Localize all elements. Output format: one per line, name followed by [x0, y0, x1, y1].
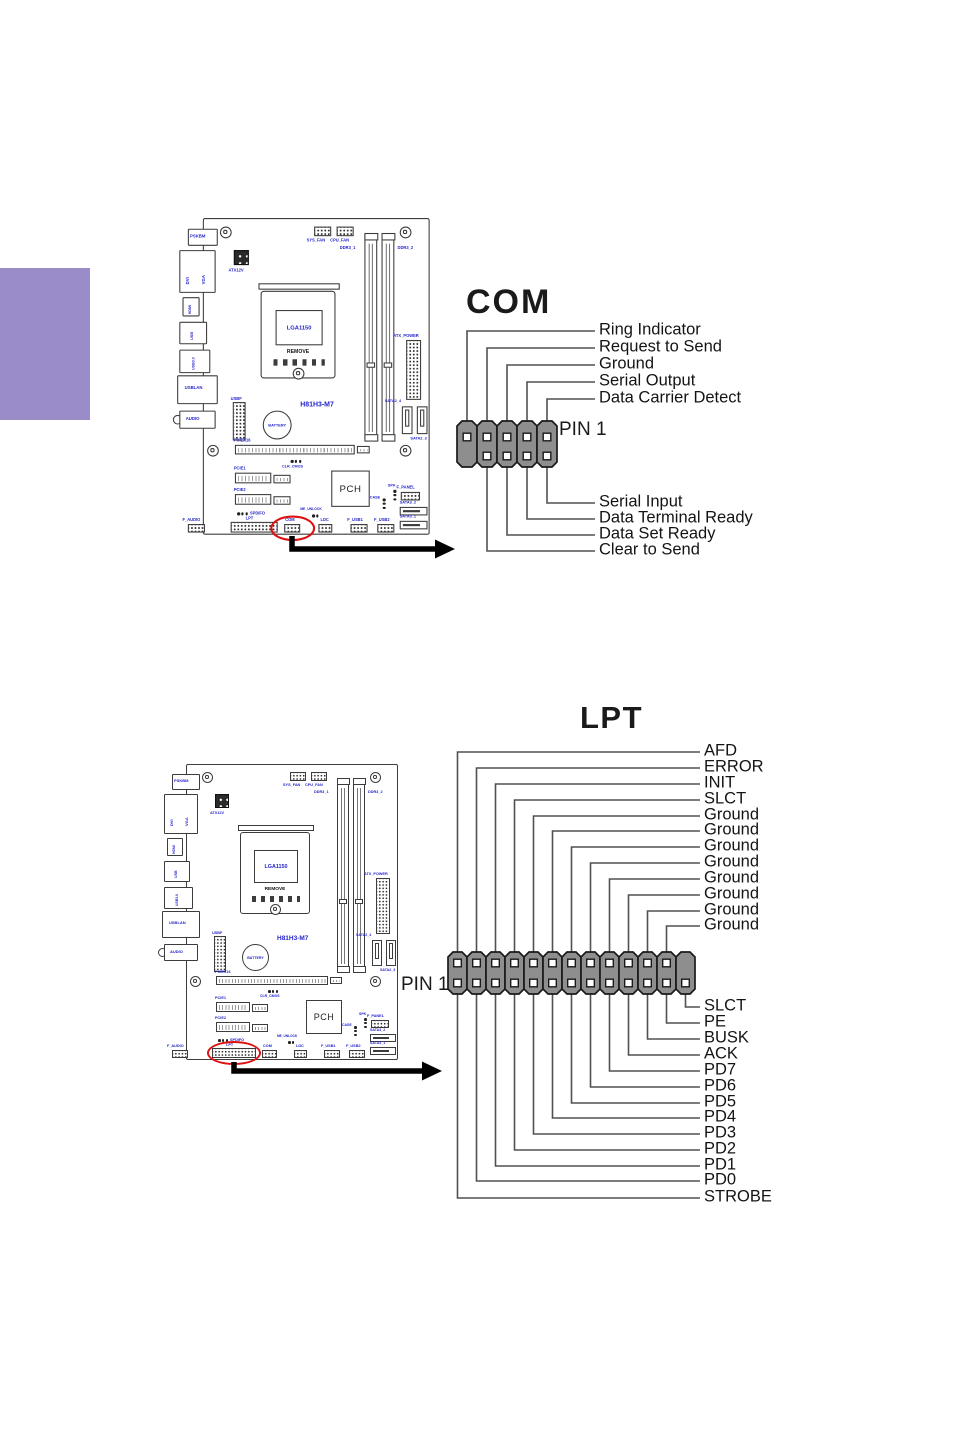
lga-label: LGA1150	[287, 324, 312, 330]
sata-port	[386, 940, 396, 966]
slot-contacts	[333, 980, 340, 982]
lpt-header-column	[543, 952, 562, 994]
pcie2-slot	[216, 1022, 250, 1032]
usbf-header-label: USBF	[231, 397, 242, 401]
f-panel-header	[371, 1020, 389, 1028]
screw-inner	[373, 979, 376, 982]
battery: BATTERY	[242, 944, 269, 971]
sata-port	[372, 940, 382, 966]
com-signal-label: Clear to Send	[599, 541, 700, 560]
lpt-pin	[530, 979, 538, 987]
pciex16-slot-label: PCIEX16	[234, 438, 251, 442]
sata-port	[400, 521, 428, 530]
pciex16-slot	[235, 445, 355, 455]
pciex16-slot	[216, 976, 328, 985]
case-jumper-pin	[383, 498, 386, 501]
lpt-header-column	[524, 952, 543, 994]
clr-cmos-jumper-pin	[276, 990, 279, 993]
spdifo-header-pin	[237, 512, 240, 515]
lpt-pin	[473, 979, 481, 987]
screw-inner	[296, 371, 300, 375]
slot-contacts	[276, 499, 288, 502]
com-pin	[503, 452, 511, 460]
pcie2-slot-label: PCIE2	[234, 488, 246, 492]
spdifo-header-pin	[245, 512, 248, 515]
dimm-slot	[337, 779, 349, 971]
screw-hole	[220, 227, 232, 239]
com-pin	[543, 452, 551, 460]
dimm-key	[339, 899, 347, 904]
lpt-pin	[606, 979, 614, 987]
clr-cmos-jumper-pin	[268, 990, 271, 993]
ps2-keyboard-mouse-port-label: PSKBM	[174, 779, 188, 783]
pch-label: PCH	[339, 483, 361, 494]
lpt-header-column	[486, 952, 505, 994]
slot-contacts	[238, 448, 352, 452]
hdmi-label-label: HDMI	[173, 845, 177, 854]
manual-page: COM PIN 1 LPT PIN 1 PSKBMDVIVGAHDMIUSBUS…	[0, 0, 954, 1431]
screw-hole	[400, 227, 412, 239]
com-pin	[463, 433, 471, 441]
screw-hole	[370, 976, 381, 987]
com-header-column	[477, 421, 497, 467]
pch-chip: PCH	[331, 471, 370, 507]
lpt-pin	[568, 979, 576, 987]
sata-inner	[403, 510, 420, 512]
lpt-pin	[625, 979, 633, 987]
ldc-header-label: LDC	[296, 1044, 304, 1048]
spk-jumper-pin	[364, 1018, 367, 1021]
pch-label: PCH	[314, 1012, 335, 1022]
lpt-pin	[663, 959, 671, 967]
screw-inner	[224, 230, 228, 234]
com-pin	[503, 433, 511, 441]
sata-port-label: SATA2_3	[380, 969, 395, 973]
sata-port-label: SATA3_2	[400, 502, 416, 506]
pcie2-slot-label: PCIE2	[215, 1016, 226, 1020]
com-header	[262, 1050, 277, 1058]
dimm-latch	[337, 778, 350, 785]
socket-clip-bar	[258, 283, 339, 289]
atx-power-connector	[406, 340, 421, 400]
sata-inner	[375, 943, 379, 959]
dimm-slot-label: DDR3_1	[340, 246, 356, 250]
atx-power-connector-label: ATX_POWER	[364, 872, 388, 876]
sata-port-label: SATA2_4	[356, 934, 371, 938]
com-header-column	[537, 421, 557, 467]
screw-inner	[403, 230, 407, 234]
spk-jumper-label: SPK	[388, 484, 396, 488]
screw-inner	[273, 907, 276, 910]
atx-power-connector-label: ATX_POWER	[393, 334, 418, 338]
sys-fan-header-label: SYS_FAN	[283, 783, 300, 787]
lpt-header-column	[657, 952, 676, 994]
me-unlock-jumper-pin	[312, 514, 315, 517]
screw-hole	[207, 445, 219, 457]
screw-hole	[400, 445, 412, 457]
model-name-label: H81H3-M7	[300, 402, 334, 409]
dimm-latch	[364, 233, 378, 240]
f-panel-header-label: F_PANEL	[396, 486, 414, 490]
f-usb1-header	[350, 524, 367, 533]
lpt-pin	[549, 979, 557, 987]
screw-hole	[202, 772, 213, 783]
f-audio-header	[172, 1050, 188, 1058]
com-pin	[523, 433, 531, 441]
remove-label: REMOVE	[262, 350, 335, 355]
lpt-header-column	[638, 952, 657, 994]
sata-inner	[403, 523, 420, 525]
lpt-pin	[568, 959, 576, 967]
spk-jumper-label: SPK	[359, 1013, 366, 1017]
lpt-header-label: LPT	[246, 517, 254, 521]
lpt-pin	[492, 959, 500, 967]
usb-label-label: USB	[175, 870, 179, 878]
com-header-label: COM	[263, 1044, 272, 1048]
dvi-vga-port	[164, 794, 198, 834]
clr-cmos-jumper-label: CLR_CMOS	[282, 465, 303, 469]
com-header-column	[517, 421, 537, 467]
spdifo-header-label: SPDIFO	[250, 511, 265, 515]
motherboard-diagram-com: PSKBMDVIVGAHDMIUSBUSB3.0USBLANAUDIOSYS_F…	[175, 218, 432, 539]
dimm-key	[384, 362, 393, 367]
f-panel-header-label: F_PANEL	[367, 1014, 384, 1018]
lpt-pin	[492, 979, 500, 987]
screw-hole	[190, 976, 201, 987]
usbf-header	[214, 936, 226, 972]
sata-port-label: SATA3_1	[400, 515, 416, 519]
diagram-lines-overlay	[0, 0, 954, 1431]
pcie2-slot-ext	[252, 1024, 268, 1032]
socket-pads	[252, 896, 300, 902]
socket-clip-bar	[238, 825, 314, 831]
f-usb2-header-label: F_USB2	[346, 1044, 361, 1048]
dimm-slot-label: DDR3_2	[398, 246, 414, 250]
socket-inner: LGA1150	[254, 850, 298, 883]
sata-inner	[373, 1050, 389, 1052]
socket-screw	[293, 368, 305, 380]
me-unlock-jumper-label: ME_UNLOCK	[300, 508, 322, 512]
cpu-fan-header	[311, 772, 327, 781]
socket-inner: LGA1150	[276, 310, 323, 345]
lpt-callout-arrow-head	[422, 1062, 442, 1081]
atx12v-connector-label: ATX12V	[210, 811, 224, 815]
lga-label: LGA1150	[264, 864, 287, 870]
pcie2-slot-ext	[273, 496, 290, 505]
lpt-pin	[625, 959, 633, 967]
atx-power-connector	[376, 878, 390, 934]
lpt-pin	[606, 959, 614, 967]
sata-port	[402, 406, 413, 434]
usb-label-label: USB	[191, 332, 195, 340]
lpt-header-column	[619, 952, 638, 994]
vga-label-label: VGA	[185, 817, 189, 826]
slot-contacts	[276, 477, 288, 480]
com-section-title: COM	[466, 283, 551, 322]
com-header-column	[457, 421, 477, 467]
dimm-latch	[364, 434, 378, 441]
com-pin1-label: PIN 1	[559, 419, 607, 441]
sata-port	[417, 406, 428, 434]
socket-screw	[270, 904, 281, 915]
dimm-key	[355, 899, 363, 904]
pciex16-slot-label: PCIEX16	[215, 970, 231, 974]
atx12v-connector-label: ATX12V	[229, 268, 244, 272]
lpt-header-column	[562, 952, 581, 994]
f-audio-header	[188, 524, 205, 533]
case-jumper-pin	[354, 1034, 357, 1037]
slot-contacts	[238, 497, 269, 502]
sys-fan-header	[290, 772, 306, 781]
lpt-signal-label: Ground	[704, 916, 759, 935]
clr-cmos-jumper-label: CLR_CMOS	[260, 995, 280, 999]
f-usb2-header-label: F_USB2	[374, 518, 390, 522]
atx12v-connector	[215, 794, 229, 808]
sys-fan-header	[314, 227, 331, 237]
lpt-header-column	[505, 952, 524, 994]
lpt-pin1-label: PIN 1	[401, 974, 449, 996]
spk-jumper-pin	[393, 498, 396, 501]
sata-inner	[419, 410, 423, 427]
pcie1-slot-label: PCIE1	[234, 466, 246, 470]
vga-label-label: VGA	[202, 275, 206, 284]
case-jumper-label: CASE	[370, 496, 380, 500]
usb3-label-label: USB3.0	[176, 894, 180, 906]
slot-contacts	[238, 475, 269, 480]
lpt-pin	[587, 979, 595, 987]
com-pin	[483, 433, 491, 441]
usb-lan-port-label: USBLAN	[169, 921, 186, 925]
pciex16-latch	[330, 977, 342, 984]
pch-chip: PCH	[306, 1000, 342, 1034]
atx12v-connector	[234, 250, 249, 265]
f-usb2-header	[377, 524, 394, 533]
case-jumper-pin	[354, 1026, 357, 1029]
slot-contacts	[255, 1027, 266, 1030]
highlight-ellipse	[270, 515, 315, 541]
dimm-channel	[369, 244, 373, 432]
slot-contacts	[219, 979, 326, 983]
spk-jumper-pin	[393, 490, 396, 493]
dimm-slot-label: DDR3_2	[368, 790, 383, 794]
f-usb2-header	[349, 1050, 365, 1058]
socket-pads	[273, 359, 324, 365]
dimm-latch	[337, 966, 350, 973]
lpt-pin	[473, 959, 481, 967]
case-jumper-pin	[383, 506, 386, 509]
usb3-label-label: USB3.0	[192, 357, 196, 370]
com-signal-label: Data Carrier Detect	[599, 389, 741, 408]
battery: BATTERY	[263, 411, 292, 440]
audio-port-label: AUDIO	[186, 417, 200, 421]
dimm-latch	[381, 233, 395, 240]
sata-inner	[389, 943, 393, 959]
motherboard-diagram-lpt: PSKBMDVIVGAHDMIUSBUSB3.0USBLANAUDIOSYS_F…	[160, 764, 400, 1064]
dimm-latch	[353, 966, 366, 973]
lpt-pin	[511, 979, 519, 987]
sata-inner	[405, 410, 409, 427]
screw-hole	[370, 772, 381, 783]
lpt-header-column	[581, 952, 600, 994]
case-jumper-label: CASE	[342, 1024, 352, 1028]
ldc-header	[318, 524, 332, 533]
usbf-header-label: USBF	[212, 931, 222, 935]
pcie1-slot	[216, 1002, 250, 1012]
model-name-label: H81H3-M7	[277, 936, 308, 943]
com-pin	[543, 433, 551, 441]
spk-jumper-pin	[364, 1026, 367, 1029]
f-usb1-header	[324, 1050, 340, 1058]
dvi-vga-port	[179, 250, 215, 293]
screw-inner	[373, 775, 376, 778]
screw-inner	[403, 449, 407, 453]
cpu-socket: LGA1150REMOVE	[240, 832, 310, 914]
dimm-latch	[353, 778, 366, 785]
lpt-signal-label: STROBE	[704, 1188, 772, 1207]
slot-contacts	[360, 449, 367, 451]
dimm-key	[367, 362, 376, 367]
cpu-fan-header	[337, 227, 354, 237]
spdifo-header-pin	[218, 1039, 221, 1042]
lpt-pin	[663, 979, 671, 987]
pcie2-slot	[235, 494, 271, 505]
screw-inner	[211, 449, 215, 453]
lpt-header-column	[600, 952, 619, 994]
lpt-pin	[511, 959, 519, 967]
lpt-pin	[644, 979, 652, 987]
sata-port-label: SATA2_4	[385, 400, 401, 404]
lpt-pin	[587, 959, 595, 967]
battery-label: BATTERY	[268, 423, 286, 427]
lpt-header-column	[448, 952, 467, 994]
lpt-pin	[644, 959, 652, 967]
f-usb1-header-label: F_USB1	[347, 518, 363, 522]
hdmi-label-label: HDMI	[189, 305, 193, 314]
lpt-pin	[549, 959, 557, 967]
com-pin	[483, 452, 491, 460]
dvi-label-label: DVI	[170, 819, 174, 826]
dimm-slot	[364, 234, 377, 439]
lpt-pin	[682, 979, 690, 987]
lpt-section-title: LPT	[580, 700, 643, 736]
dimm-channel	[341, 788, 345, 964]
clr-cmos-jumper-pin	[291, 460, 294, 463]
lpt-pin	[454, 959, 462, 967]
sata-inner	[373, 1037, 389, 1039]
lpt-pin	[530, 959, 538, 967]
f-usb1-header-label: F_USB1	[321, 1044, 336, 1048]
pcie1-slot-ext	[252, 1004, 268, 1012]
me-unlock-jumper-pin	[288, 1041, 291, 1044]
lpt-header-column	[676, 952, 695, 994]
lpt-pin	[454, 979, 462, 987]
cpu-socket: LGA1150REMOVE	[261, 291, 336, 379]
screw-inner	[193, 979, 196, 982]
f-audio-header-label: F_AUDIO	[182, 518, 200, 522]
com-pin	[523, 452, 531, 460]
cpu-fan-header-label: CPU_FAN	[305, 783, 323, 787]
remove-label: REMOVE	[241, 887, 309, 892]
pcie1-slot	[235, 473, 271, 484]
sata-port-label: SATA3_2	[370, 1029, 385, 1033]
audio-port-label: AUDIO	[170, 950, 183, 954]
dimm-slot-label: DDR3_1	[314, 790, 329, 794]
slot-contacts	[255, 1007, 266, 1010]
sata-port	[370, 1047, 396, 1055]
ldc-header-label: LDC	[321, 518, 329, 522]
highlight-ellipse	[207, 1041, 261, 1065]
purple-accent-bar	[0, 268, 90, 420]
com-header-column	[497, 421, 517, 467]
slot-contacts	[219, 1005, 248, 1010]
usb-lan-port-label: USBLAN	[185, 386, 203, 390]
screw-inner	[205, 775, 208, 778]
ldc-header	[294, 1050, 307, 1058]
me-unlock-jumper-label: ME_UNLOCK	[277, 1035, 297, 1038]
sys-fan-header-label: SYS_FAN	[307, 238, 326, 242]
pcie1-slot-label: PCIE1	[215, 996, 226, 1000]
f-audio-header-label: F_AUDIO	[167, 1044, 184, 1048]
cpu-fan-header-label: CPU_FAN	[330, 238, 349, 242]
com-callout-arrow-head	[435, 540, 455, 559]
dvi-label-label: DVI	[186, 277, 190, 284]
sata-port-label: SATA2_3	[410, 437, 426, 441]
usbf-header	[233, 402, 246, 441]
pciex16-latch	[357, 446, 370, 453]
battery-label: BATTERY	[247, 956, 264, 960]
lpt-header-column	[467, 952, 486, 994]
dimm-latch	[381, 434, 395, 441]
sata-port-label: SATA3_1	[370, 1042, 385, 1046]
pcie1-slot-ext	[273, 475, 290, 484]
clr-cmos-jumper-pin	[299, 460, 302, 463]
slot-contacts	[219, 1025, 248, 1030]
ps2-keyboard-mouse-port-label: PSKBM	[190, 234, 205, 238]
f-panel-header	[401, 492, 420, 501]
